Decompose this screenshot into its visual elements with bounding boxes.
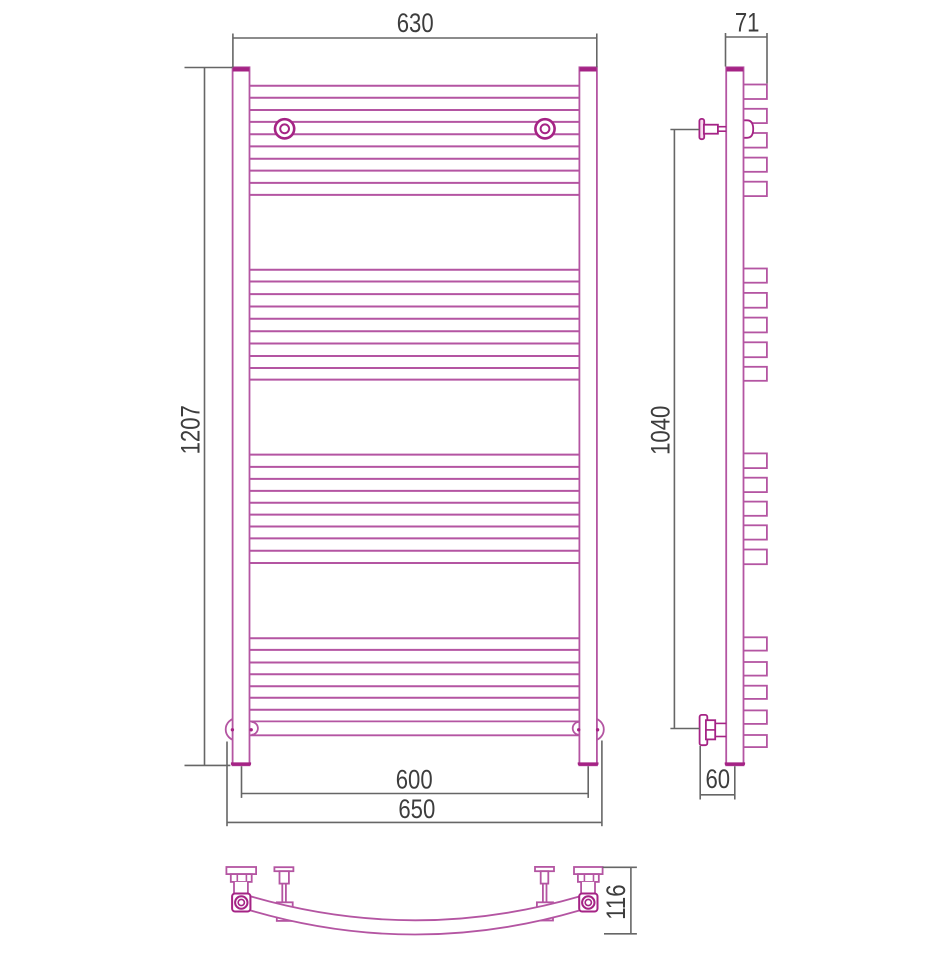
svg-text:116: 116 xyxy=(602,884,632,919)
svg-text:650: 650 xyxy=(398,795,435,825)
svg-text:600: 600 xyxy=(396,766,433,796)
svg-text:60: 60 xyxy=(705,765,730,795)
svg-text:1207: 1207 xyxy=(176,405,206,454)
svg-text:71: 71 xyxy=(735,8,760,38)
svg-text:1040: 1040 xyxy=(647,406,677,455)
svg-text:630: 630 xyxy=(397,9,434,39)
